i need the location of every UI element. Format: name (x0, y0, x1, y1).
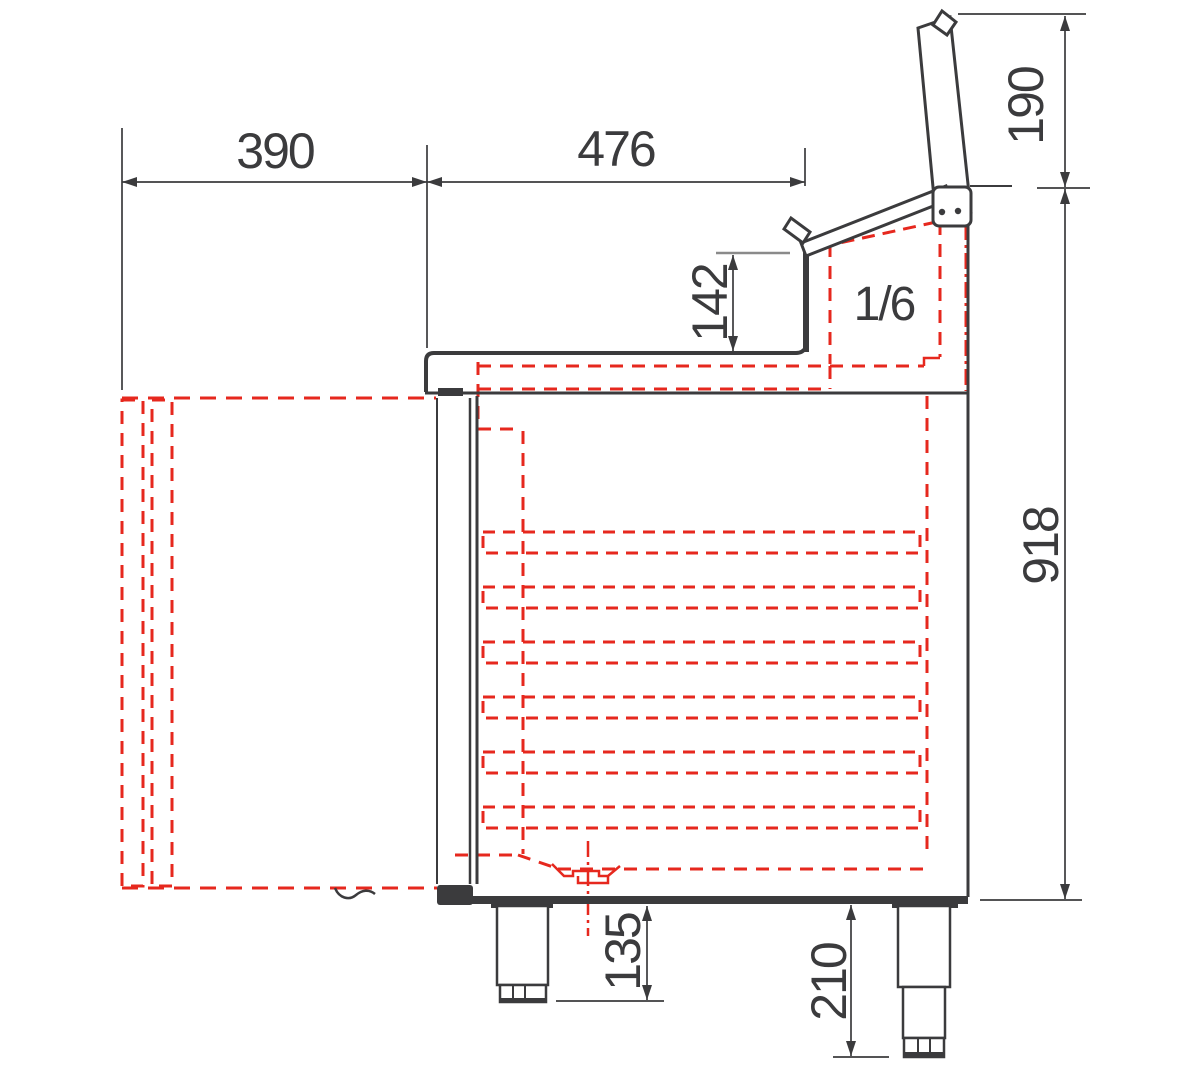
rear-foot (892, 903, 958, 1057)
lid-handle (784, 218, 810, 243)
shelf-rail (483, 697, 920, 718)
lid-hinge-block (933, 186, 1012, 226)
open-door-outline (122, 400, 172, 886)
shelf-rail (483, 587, 920, 608)
dim-label-front-foot-height: 135 (595, 913, 651, 991)
closed-lid (784, 186, 951, 256)
dim-label-well-raise-height: 142 (682, 264, 738, 342)
hidden-outlines (122, 221, 966, 936)
drain-outline (552, 864, 620, 883)
bottom-slab (470, 896, 968, 904)
dim-label-open-lid-height: 190 (998, 67, 1054, 145)
cabinet-body (335, 11, 1012, 1057)
gn-container-label: 1/6 (854, 278, 915, 331)
shelf-rail (483, 752, 920, 773)
technical-drawing-canvas: 390 476 142 190 918 135 210 1/6 (0, 0, 1200, 1080)
door-bottom-hinge (437, 885, 473, 905)
dim-label-overall-height: 918 (1013, 507, 1069, 585)
dim-label-worktop-depth: 476 (577, 121, 655, 177)
door-swing-break-mark (335, 888, 375, 898)
shelf-rail (483, 807, 920, 828)
shelf-rails (483, 532, 920, 828)
shelf-rail (483, 532, 920, 553)
door-top-hinge (438, 388, 463, 396)
shelf-rail (483, 642, 920, 663)
dim-label-door-open-depth: 390 (236, 123, 314, 179)
dim-label-rear-foot-height: 210 (801, 943, 857, 1021)
inner-liner-outline (455, 362, 927, 869)
worktop (426, 347, 806, 392)
front-foot (491, 903, 553, 1003)
counter-side-view-drawing: 390 476 142 190 918 135 210 1/6 (0, 0, 1200, 1080)
